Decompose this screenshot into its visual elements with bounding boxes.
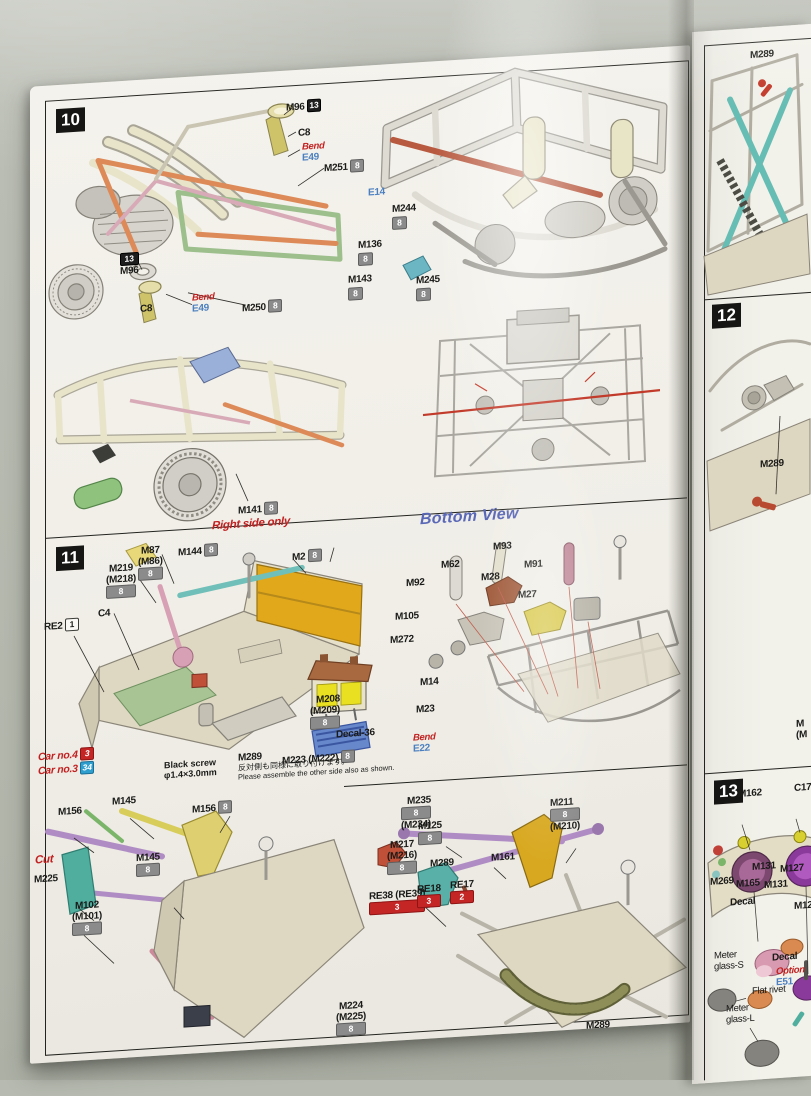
flat-rivet-label: Flat rivet (752, 984, 785, 997)
instruction-page-left: 10 11 (30, 45, 690, 1064)
part-label-m156-a: M156 (58, 806, 82, 818)
part-label-m131-a: M131 (752, 860, 776, 873)
part-label-m145-a: M145 (112, 795, 136, 807)
part-label-c17: C17 (794, 782, 811, 794)
part-label-m2: M2 8 (292, 548, 322, 563)
decal-label-a: Decal (730, 896, 755, 909)
part-label-m14: M14 (420, 676, 439, 688)
part-label-c4: C4 (98, 608, 110, 620)
part-label-m224: M224(M225)8 (336, 1000, 366, 1037)
part-label-m289-c: M289 (586, 1019, 610, 1031)
part-label-m162: M162 (738, 787, 762, 800)
part-label-m87: M87(M86)8 (138, 544, 163, 581)
part-label-re18: RE183 (417, 883, 441, 908)
meter-glass-s-label: Meterglass-S (714, 949, 744, 973)
part-label-re17: RE172 (450, 879, 474, 904)
part-label-m269: M269 (710, 875, 734, 888)
part-label-m125: M1258 (418, 820, 442, 845)
part-label-m96-lower: 13M96 (120, 252, 139, 277)
part-label-m165: M165 (736, 877, 760, 890)
part-label-m93: M93 (493, 540, 512, 552)
part-label-m131-b: M131 (764, 878, 788, 891)
part-label-m141: M141 8 (238, 501, 278, 517)
part-label-m289-b: M289 (430, 857, 454, 869)
page-spine-shadow (668, 0, 694, 1080)
part-label-re2: RE2 1 (44, 618, 79, 633)
part-label-m144: M144 8 (178, 543, 218, 559)
part-label-m27: M27 (518, 589, 537, 601)
part-label-m136: M1368 (358, 239, 382, 266)
part-label-m96-top: M96 13 (286, 98, 321, 113)
step10-rollcage-diagram (375, 47, 687, 307)
step12-diagram (702, 324, 811, 567)
part-label-m208: M208(M209) 8 (310, 693, 340, 730)
decal-label-b: Decal (772, 951, 797, 964)
step-12-number: 12 (712, 303, 741, 329)
step10-chassis-side-diagram (40, 316, 360, 531)
part-label-m250: M250 8 (242, 299, 282, 315)
part-label-e14: E14 (368, 186, 385, 198)
part-label-m289-rp-top: M289 (750, 48, 774, 61)
instruction-page-right: 12 13 (692, 24, 811, 1084)
part-label-m251: M251 8 (324, 159, 364, 175)
part-label-m102: M102(M101)8 (72, 899, 102, 936)
step11-levers-diagram (428, 513, 686, 761)
bend-note-e49-top: BendE49 (302, 140, 325, 163)
part-label-m217: M217(M216)8 (387, 838, 417, 875)
step11-cockpit-diagram (44, 525, 374, 784)
part-label-m156-b: M156 8 (192, 800, 232, 816)
part-label-m245: M2458 (416, 274, 440, 301)
cut-note: Cut (35, 854, 53, 866)
part-label-m272: M272 (390, 634, 414, 646)
part-label-m161: M161 (491, 851, 515, 863)
part-label-m92: M92 (406, 577, 425, 589)
part-label-m23: M23 (416, 703, 435, 715)
right-page-divider-2 (704, 766, 811, 774)
part-label-m105: M105 (395, 610, 419, 622)
part-label-m244: M2448 (392, 202, 416, 229)
part-label-m225: M225 (34, 873, 58, 885)
bend-note-e22: BendE22 (413, 731, 436, 754)
part-label-m145-b: M1458 (136, 852, 160, 877)
part-label-m127: M127 (780, 862, 804, 875)
part-label-m28: M28 (481, 571, 500, 583)
bottom-view-caption: Bottom View (420, 508, 519, 525)
part-label-m91: M91 (524, 559, 543, 571)
black-screw-note: Black screwφ1.4×3.0mm (164, 757, 217, 780)
part-label-c8-top: C8 (298, 127, 310, 139)
meter-glass-l-label: Meterglass-L (726, 1002, 755, 1026)
step-prev-brace-diagram (702, 44, 811, 297)
part-label-m219: M219(M218)8 (106, 562, 136, 599)
part-label-truncated: M(M (796, 718, 807, 741)
part-label-m289-rp-mid: M289 (760, 458, 784, 471)
part-label-c8-lower: C8 (140, 303, 152, 315)
step10-bottom-view-diagram (415, 301, 670, 502)
bend-note-e49-lower: BendE49 (192, 291, 215, 314)
part-label-m143: M1438 (348, 273, 372, 300)
part-label-m62: M62 (441, 559, 460, 571)
step13-dashboard-diagram (700, 788, 811, 1096)
part-label-m12: M12 (794, 900, 811, 912)
part-label-m211: M211 8(M210) (550, 796, 580, 833)
